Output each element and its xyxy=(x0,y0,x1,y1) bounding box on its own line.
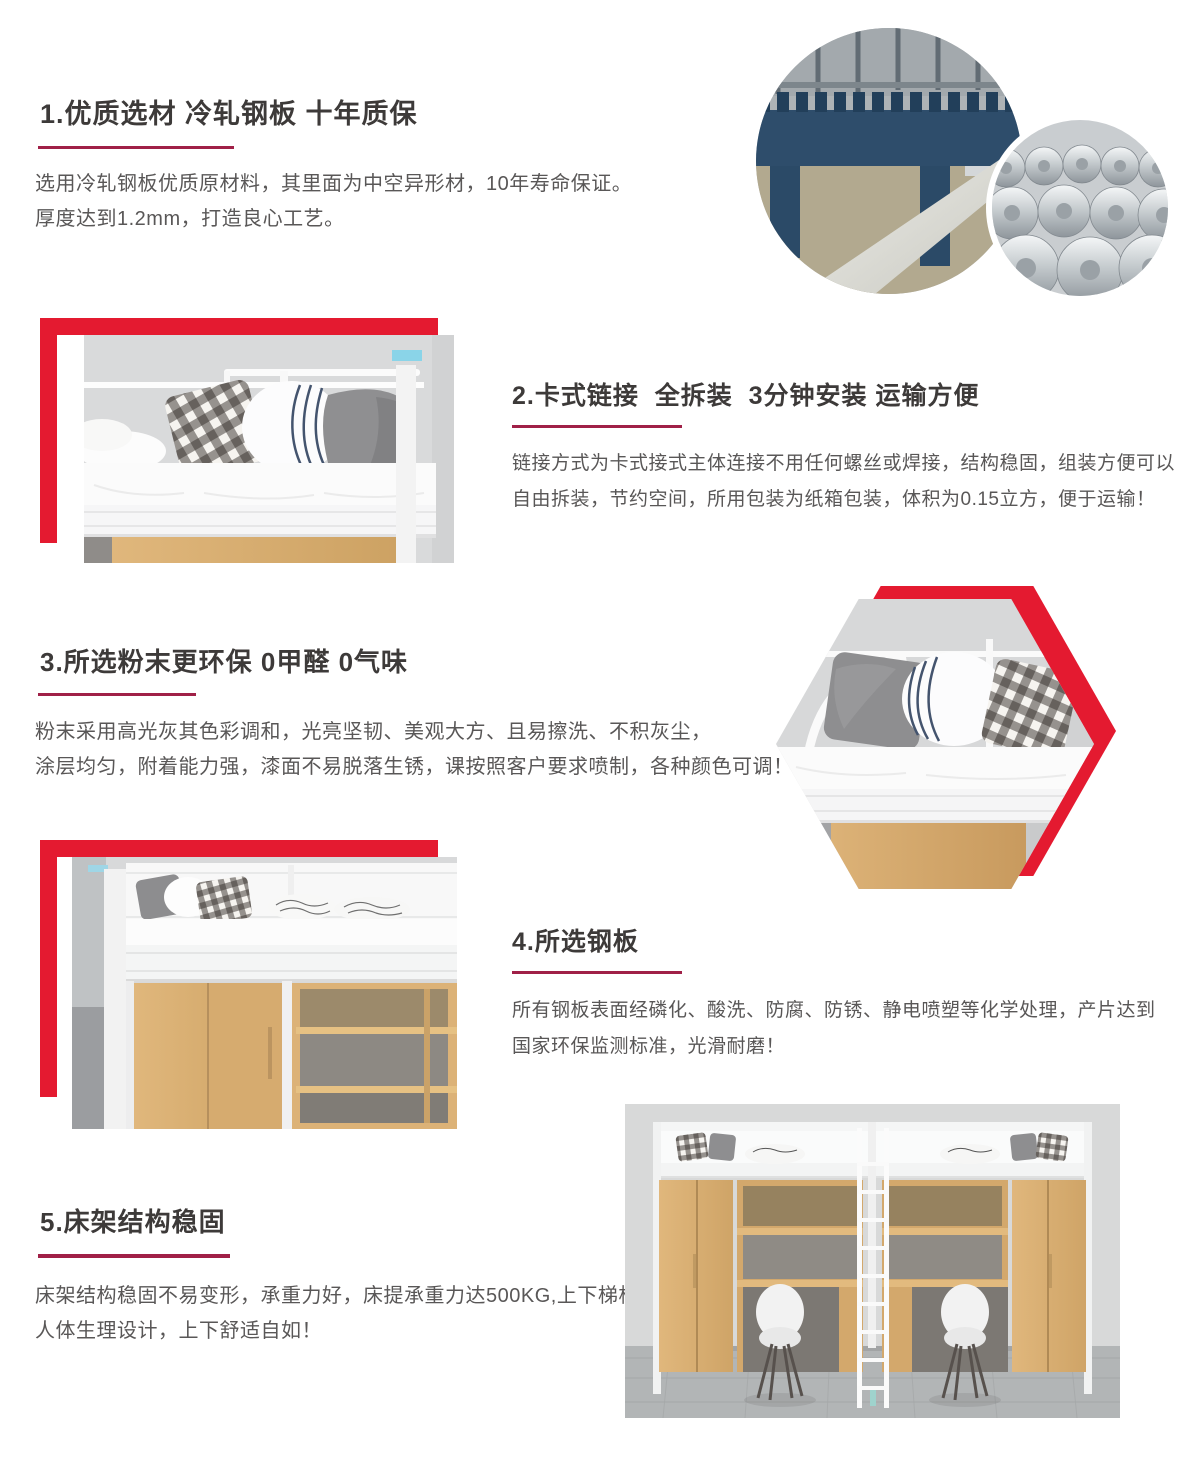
sliding-door-wardrobe xyxy=(134,983,282,1129)
right-wardrobe xyxy=(1012,1180,1086,1372)
section-3-title: 3.所选粉末更环保 0甲醛 0气味 xyxy=(40,642,408,679)
section-5-title: 5.床架结构稳固 xyxy=(40,1202,226,1239)
body-line: 链接方式为卡式接式主体连接不用任何螺丝或焊接，结构稳固，组装方便可以 xyxy=(512,446,1175,482)
factory-photos-circles xyxy=(750,18,1190,308)
section-5-underline xyxy=(38,1254,230,1258)
section-3-body: 粉末采用高光灰其色彩调和，光亮坚韧、美观大方、且易擦洗、不积灰尘， 涂层均匀，附… xyxy=(35,715,794,785)
hexagon-feature-image xyxy=(776,586,1116,889)
section-4-body: 所有钢板表面经磷化、酸洗、防腐、防锈、静电喷塑等化学处理，产片达到 国家环保监测… xyxy=(512,993,1156,1065)
section-4-underline xyxy=(512,971,682,974)
cyan-tab xyxy=(392,350,422,361)
red-frame-left xyxy=(40,840,57,1097)
left-desk-unit xyxy=(737,1180,863,1372)
bunk-bed-top-photo xyxy=(84,335,454,563)
section-1-body: 选用冷轧钢板优质原材料，其里面为中空异形材，10年寿命保证。 厚度达到1.2mm… xyxy=(35,167,632,237)
section-3-underline xyxy=(38,693,196,696)
section-1-title: 1.优质选材 冷轧钢板 十年质保 xyxy=(40,92,418,131)
body-line: 床架结构稳固不易变形，承重力好，床提承重力达500KG,上下梯根据 xyxy=(35,1279,659,1314)
left-wardrobe xyxy=(659,1180,733,1372)
body-line: 选用冷轧钢板优质原材料，其里面为中空异形材，10年寿命保证。 xyxy=(35,167,632,202)
plaid-pillow xyxy=(195,876,252,925)
wood-cabinet-top xyxy=(112,537,398,563)
wood-cabinet-top xyxy=(831,823,1026,889)
body-line: 人体生理设计，上下舒适自如！ xyxy=(35,1314,659,1349)
bed-post xyxy=(396,365,416,563)
right-desk-unit xyxy=(882,1180,1008,1372)
section-5-body: 床架结构稳固不易变形，承重力好，床提承重力达500KG,上下梯根据 人体生理设计… xyxy=(35,1279,659,1349)
double-loft-bed-photo xyxy=(625,1104,1120,1418)
section-4-title: 4.所选钢板 xyxy=(512,922,639,958)
bed-post xyxy=(104,869,126,1129)
body-line: 国家环保监测标准，光滑耐磨！ xyxy=(512,1029,1156,1065)
red-frame-top xyxy=(40,318,438,335)
red-frame-left xyxy=(40,318,57,543)
red-frame-top xyxy=(40,840,438,857)
body-line: 自由拆装，节约空间，所用包装为纸箱包装，体积为0.15立方，便于运输！ xyxy=(512,482,1175,518)
body-line: 涂层均匀，附着能力强，漆面不易脱落生锈，课按照客户要求喷制，各种颜色可调！ xyxy=(35,750,794,785)
product-detail-page: 1.优质选材 冷轧钢板 十年质保 选用冷轧钢板优质原材料，其里面为中空异形材，1… xyxy=(0,0,1200,1476)
loft-bed-wardrobe-photo xyxy=(72,857,457,1129)
body-line: 所有钢板表面经磷化、酸洗、防腐、防锈、静电喷塑等化学处理，产片达到 xyxy=(512,993,1156,1029)
open-shelf-unit xyxy=(292,983,457,1129)
section-2-underline xyxy=(512,425,682,428)
section-1-underline xyxy=(38,146,234,149)
body-line: 粉末采用高光灰其色彩调和，光亮坚韧、美观大方、且易擦洗、不积灰尘， xyxy=(35,715,794,750)
body-line: 厚度达到1.2mm，打造良心工艺。 xyxy=(35,202,632,237)
section-2-body: 链接方式为卡式接式主体连接不用任何螺丝或焊接，结构稳固，组装方便可以 自由拆装，… xyxy=(512,446,1175,518)
section-2-title: 2.卡式链接 全拆装 3分钟安装 运输方便 xyxy=(512,376,979,412)
rolling-machine-photo xyxy=(750,18,1030,308)
